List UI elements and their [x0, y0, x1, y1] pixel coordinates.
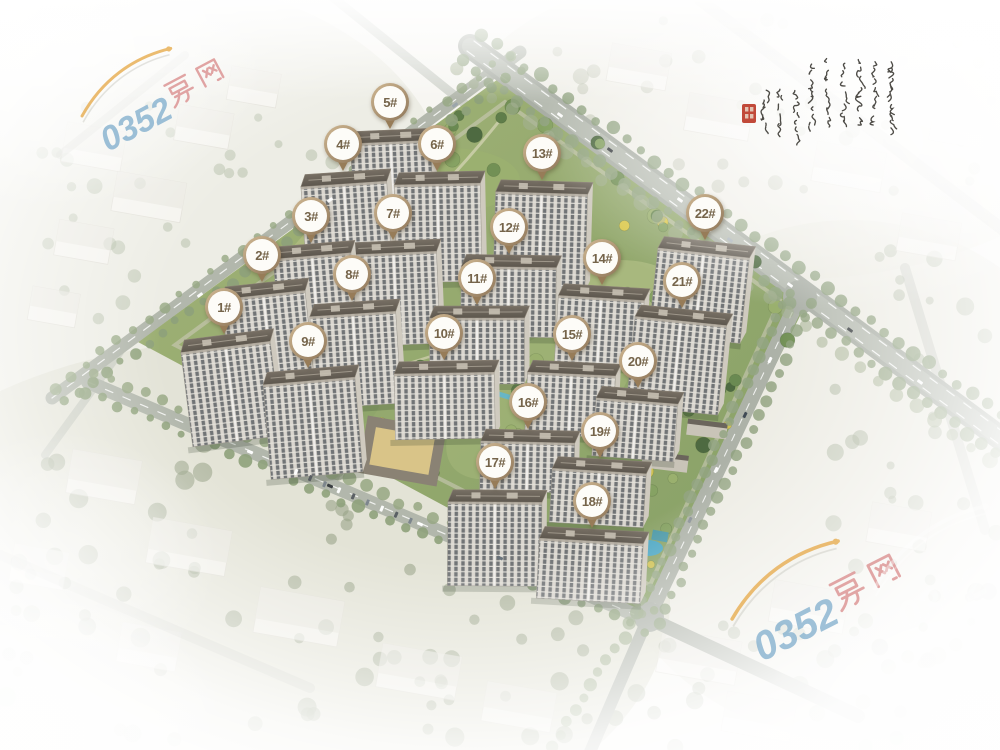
marker-label: 18#	[576, 485, 608, 517]
marker-label: 2#	[246, 239, 278, 271]
marker-label: 14#	[586, 242, 618, 274]
marker-label: 17#	[479, 446, 511, 478]
marker-label: 15#	[556, 318, 588, 350]
marker-label: 12#	[493, 211, 525, 243]
building-marker-20[interactable]: 20#	[619, 342, 657, 394]
building-marker-10[interactable]: 10#	[425, 314, 463, 366]
building-marker-1[interactable]: 1#	[205, 288, 243, 340]
building-marker-17[interactable]: 17#	[476, 443, 514, 495]
marker-label: 8#	[336, 258, 368, 290]
building-marker-9[interactable]: 9#	[289, 322, 327, 374]
marker-ring: 17#	[476, 443, 514, 481]
marker-ring: 7#	[374, 194, 412, 232]
marker-label: 16#	[512, 386, 544, 418]
building-marker-21[interactable]: 21#	[663, 262, 701, 314]
marker-label: 21#	[666, 265, 698, 297]
marker-ring: 19#	[581, 412, 619, 450]
marker-label: 10#	[428, 317, 460, 349]
marker-label: 5#	[374, 86, 406, 118]
marker-ring: 4#	[324, 125, 362, 163]
marker-ring: 14#	[583, 239, 621, 277]
marker-label: 6#	[421, 128, 453, 160]
marker-ring: 11#	[458, 259, 496, 297]
marker-ring: 9#	[289, 322, 327, 360]
marker-ring: 16#	[509, 383, 547, 421]
marker-ring: 15#	[553, 315, 591, 353]
marker-ring: 8#	[333, 255, 371, 293]
building-marker-12[interactable]: 12#	[490, 208, 528, 260]
marker-label: 22#	[689, 197, 721, 229]
building-marker-3[interactable]: 3#	[292, 197, 330, 249]
building-marker-22[interactable]: 22#	[686, 194, 724, 246]
marker-label: 4#	[327, 128, 359, 160]
building-marker-8[interactable]: 8#	[333, 255, 371, 307]
building-marker-18[interactable]: 18#	[573, 482, 611, 534]
building-marker-13[interactable]: 13#	[523, 134, 561, 186]
marker-ring: 12#	[490, 208, 528, 246]
marker-label: 11#	[461, 262, 493, 294]
building-markers-layer: 1# 2# 3# 4# 5# 6# 7# 8#	[0, 0, 1000, 750]
marker-label: 13#	[526, 137, 558, 169]
building-marker-16[interactable]: 16#	[509, 383, 547, 435]
building-marker-4[interactable]: 4#	[324, 125, 362, 177]
marker-ring: 1#	[205, 288, 243, 326]
marker-ring: 10#	[425, 314, 463, 352]
building-marker-7[interactable]: 7#	[374, 194, 412, 246]
aerial-site-rendering: 035203520352 1# 2# 3# 4# 5# 6# 7#	[0, 0, 1000, 750]
marker-ring: 22#	[686, 194, 724, 232]
marker-ring: 3#	[292, 197, 330, 235]
marker-ring: 2#	[243, 236, 281, 274]
marker-ring: 20#	[619, 342, 657, 380]
marker-label: 1#	[208, 291, 240, 323]
building-marker-2[interactable]: 2#	[243, 236, 281, 288]
marker-ring: 21#	[663, 262, 701, 300]
building-marker-19[interactable]: 19#	[581, 412, 619, 464]
marker-ring: 6#	[418, 125, 456, 163]
marker-label: 3#	[295, 200, 327, 232]
marker-ring: 5#	[371, 83, 409, 121]
marker-label: 20#	[622, 345, 654, 377]
building-marker-6[interactable]: 6#	[418, 125, 456, 177]
marker-ring: 18#	[573, 482, 611, 520]
marker-label: 19#	[584, 415, 616, 447]
building-marker-11[interactable]: 11#	[458, 259, 496, 311]
building-marker-15[interactable]: 15#	[553, 315, 591, 367]
building-marker-5[interactable]: 5#	[371, 83, 409, 135]
building-marker-14[interactable]: 14#	[583, 239, 621, 291]
marker-label: 9#	[292, 325, 324, 357]
marker-ring: 13#	[523, 134, 561, 172]
marker-label: 7#	[377, 197, 409, 229]
